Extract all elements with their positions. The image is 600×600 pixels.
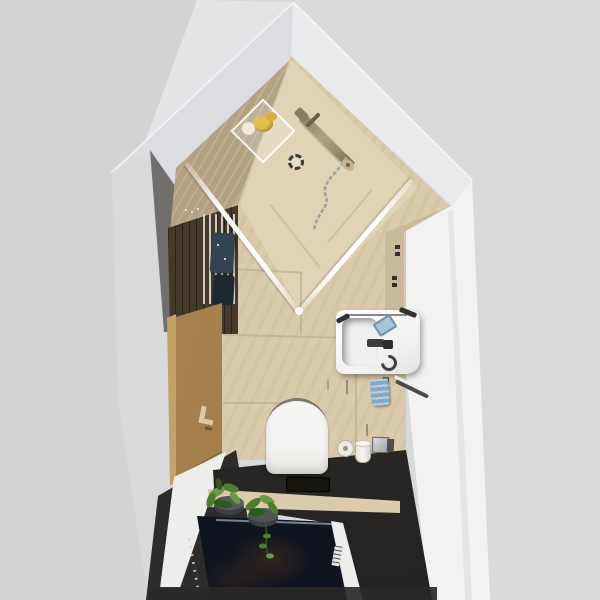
toiletry-bottle-yellow-small xyxy=(266,112,277,121)
towel-speck xyxy=(217,244,219,246)
brush-cup-top xyxy=(355,440,371,447)
shower-hose xyxy=(300,145,360,240)
faucet xyxy=(367,339,384,347)
hanging-towel-blue xyxy=(370,378,390,406)
faucet-handle xyxy=(383,340,393,349)
wall-tick xyxy=(327,380,329,390)
toiletry-bottle-white xyxy=(242,122,255,135)
wall-mark xyxy=(395,252,400,256)
wall-mark xyxy=(392,283,397,287)
wall-tick xyxy=(366,424,368,436)
towel-speck xyxy=(224,258,226,260)
towel-navy-top xyxy=(210,232,236,274)
toilet-paper-core xyxy=(343,446,348,451)
wall-mark xyxy=(395,245,400,249)
wall-tick xyxy=(346,380,348,394)
hook-dot xyxy=(197,208,199,210)
tile-seam xyxy=(223,402,283,404)
hook-dot xyxy=(185,209,187,211)
glass-panel-joint xyxy=(295,307,303,315)
hook-dot xyxy=(191,211,193,213)
chrome-plate-bracket xyxy=(387,439,394,452)
toilet xyxy=(266,398,328,474)
bathroom-top-view-render xyxy=(0,0,600,600)
potted-plants xyxy=(193,478,305,590)
sink-top-line xyxy=(345,314,407,316)
towel-navy-bottom xyxy=(212,274,235,305)
wall-mark xyxy=(392,276,397,280)
